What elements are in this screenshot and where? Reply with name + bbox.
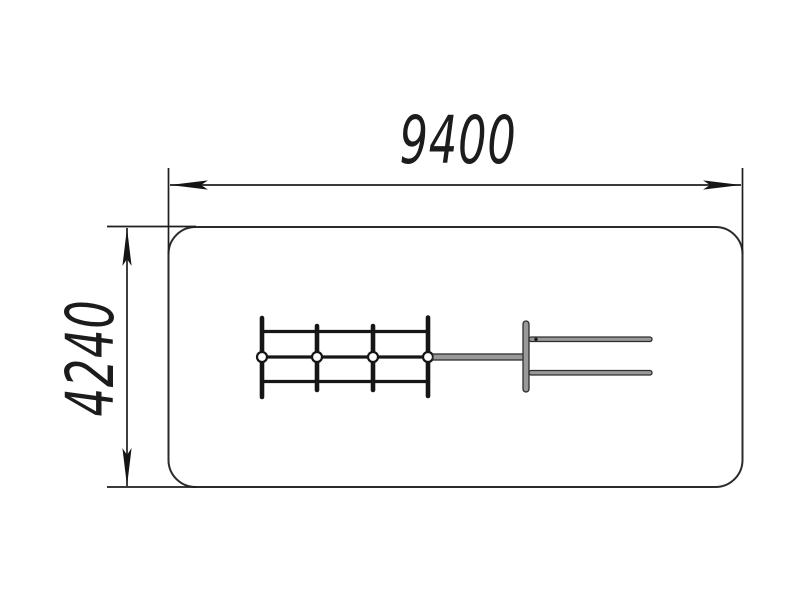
joint-circle-3: [368, 352, 378, 362]
joint-circle-4: [423, 352, 433, 362]
swing-beam-top: [529, 337, 652, 342]
swing-post: [523, 321, 529, 392]
technical-drawing-canvas: 9400 4240: [0, 0, 800, 600]
swing-assembly: [433, 321, 652, 392]
swing-beam-bottom: [529, 371, 652, 376]
beam-joint-dot: [534, 338, 537, 341]
equipment-plan-view-drawing: 9400 4240: [0, 0, 800, 600]
width-dimension: [169, 168, 743, 254]
joint-circle-2: [312, 352, 322, 362]
width-dimension-label: 9400: [400, 103, 517, 179]
joint-circle-1: [257, 352, 267, 362]
connecting-beam: [433, 354, 524, 360]
equipment-structure: [257, 318, 652, 398]
height-dimension-label: 4240: [53, 300, 129, 417]
climber-grid: [262, 318, 428, 398]
